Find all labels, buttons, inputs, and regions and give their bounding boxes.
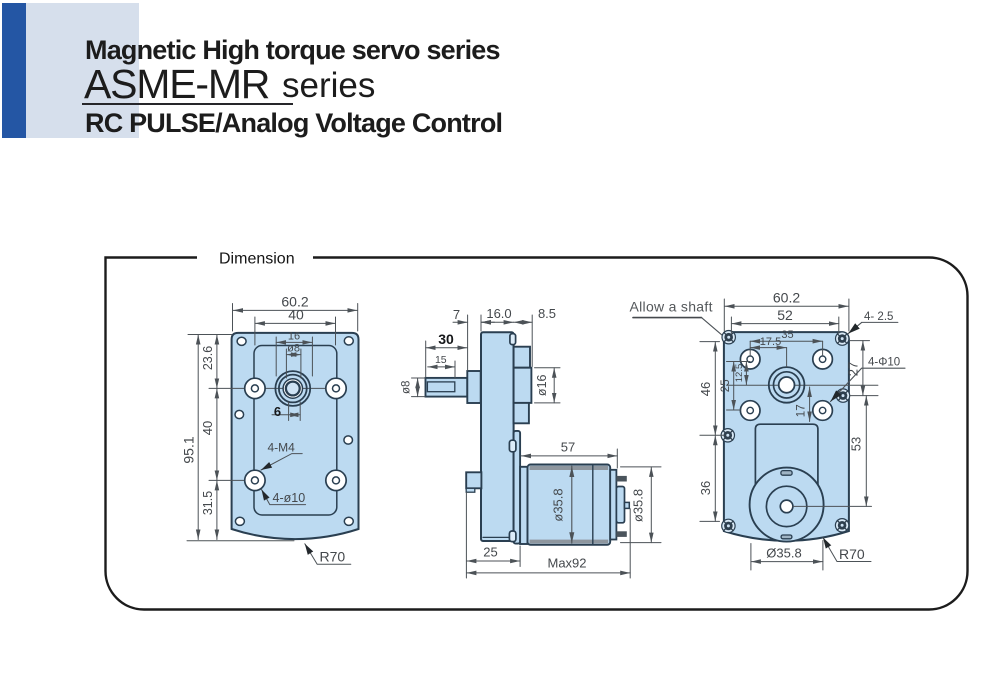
svg-text:31.5: 31.5: [201, 491, 215, 515]
svg-text:60.2: 60.2: [773, 289, 800, 305]
svg-text:ø35.8: ø35.8: [630, 489, 645, 522]
svg-text:R70: R70: [839, 546, 865, 562]
svg-text:17: 17: [795, 404, 807, 417]
svg-text:4-M4: 4-M4: [268, 441, 296, 455]
svg-text:ø35.8: ø35.8: [551, 488, 566, 521]
svg-text:17.5: 17.5: [760, 336, 781, 348]
svg-text:30: 30: [438, 331, 454, 347]
svg-text:ø8: ø8: [401, 381, 413, 394]
svg-text:53: 53: [848, 437, 863, 451]
svg-text:25: 25: [483, 545, 497, 560]
svg-text:12.5: 12.5: [734, 364, 745, 383]
svg-text:7: 7: [453, 307, 460, 322]
svg-text:15: 15: [435, 354, 447, 366]
svg-text:Ø35.8: Ø35.8: [766, 546, 801, 561]
svg-text:16.0: 16.0: [486, 306, 511, 321]
svg-text:Dimension: Dimension: [219, 251, 295, 268]
svg-text:ø16: ø16: [535, 374, 549, 396]
svg-text:16: 16: [288, 331, 300, 343]
svg-text:Max92: Max92: [547, 555, 586, 570]
svg-text:ø8: ø8: [287, 343, 300, 355]
svg-text:36: 36: [698, 481, 713, 495]
svg-text:4-Φ10: 4-Φ10: [868, 356, 900, 368]
svg-text:27: 27: [845, 362, 860, 376]
svg-text:57: 57: [561, 439, 575, 454]
svg-text:40: 40: [288, 307, 304, 323]
svg-text:40: 40: [200, 421, 215, 435]
svg-text:4- 2.5: 4- 2.5: [864, 311, 893, 323]
svg-text:35: 35: [781, 329, 793, 341]
svg-text:8.5: 8.5: [538, 306, 556, 321]
svg-text:4-ø10: 4-ø10: [273, 491, 306, 505]
svg-text:25: 25: [720, 379, 732, 392]
svg-text:Allow a shaft: Allow a shaft: [630, 299, 713, 315]
svg-text:R70: R70: [320, 549, 346, 565]
svg-text:52: 52: [777, 307, 793, 323]
svg-text:23.6: 23.6: [201, 346, 215, 370]
svg-text:95.1: 95.1: [181, 436, 197, 463]
svg-text:6: 6: [274, 404, 281, 419]
svg-text:46: 46: [698, 382, 713, 396]
